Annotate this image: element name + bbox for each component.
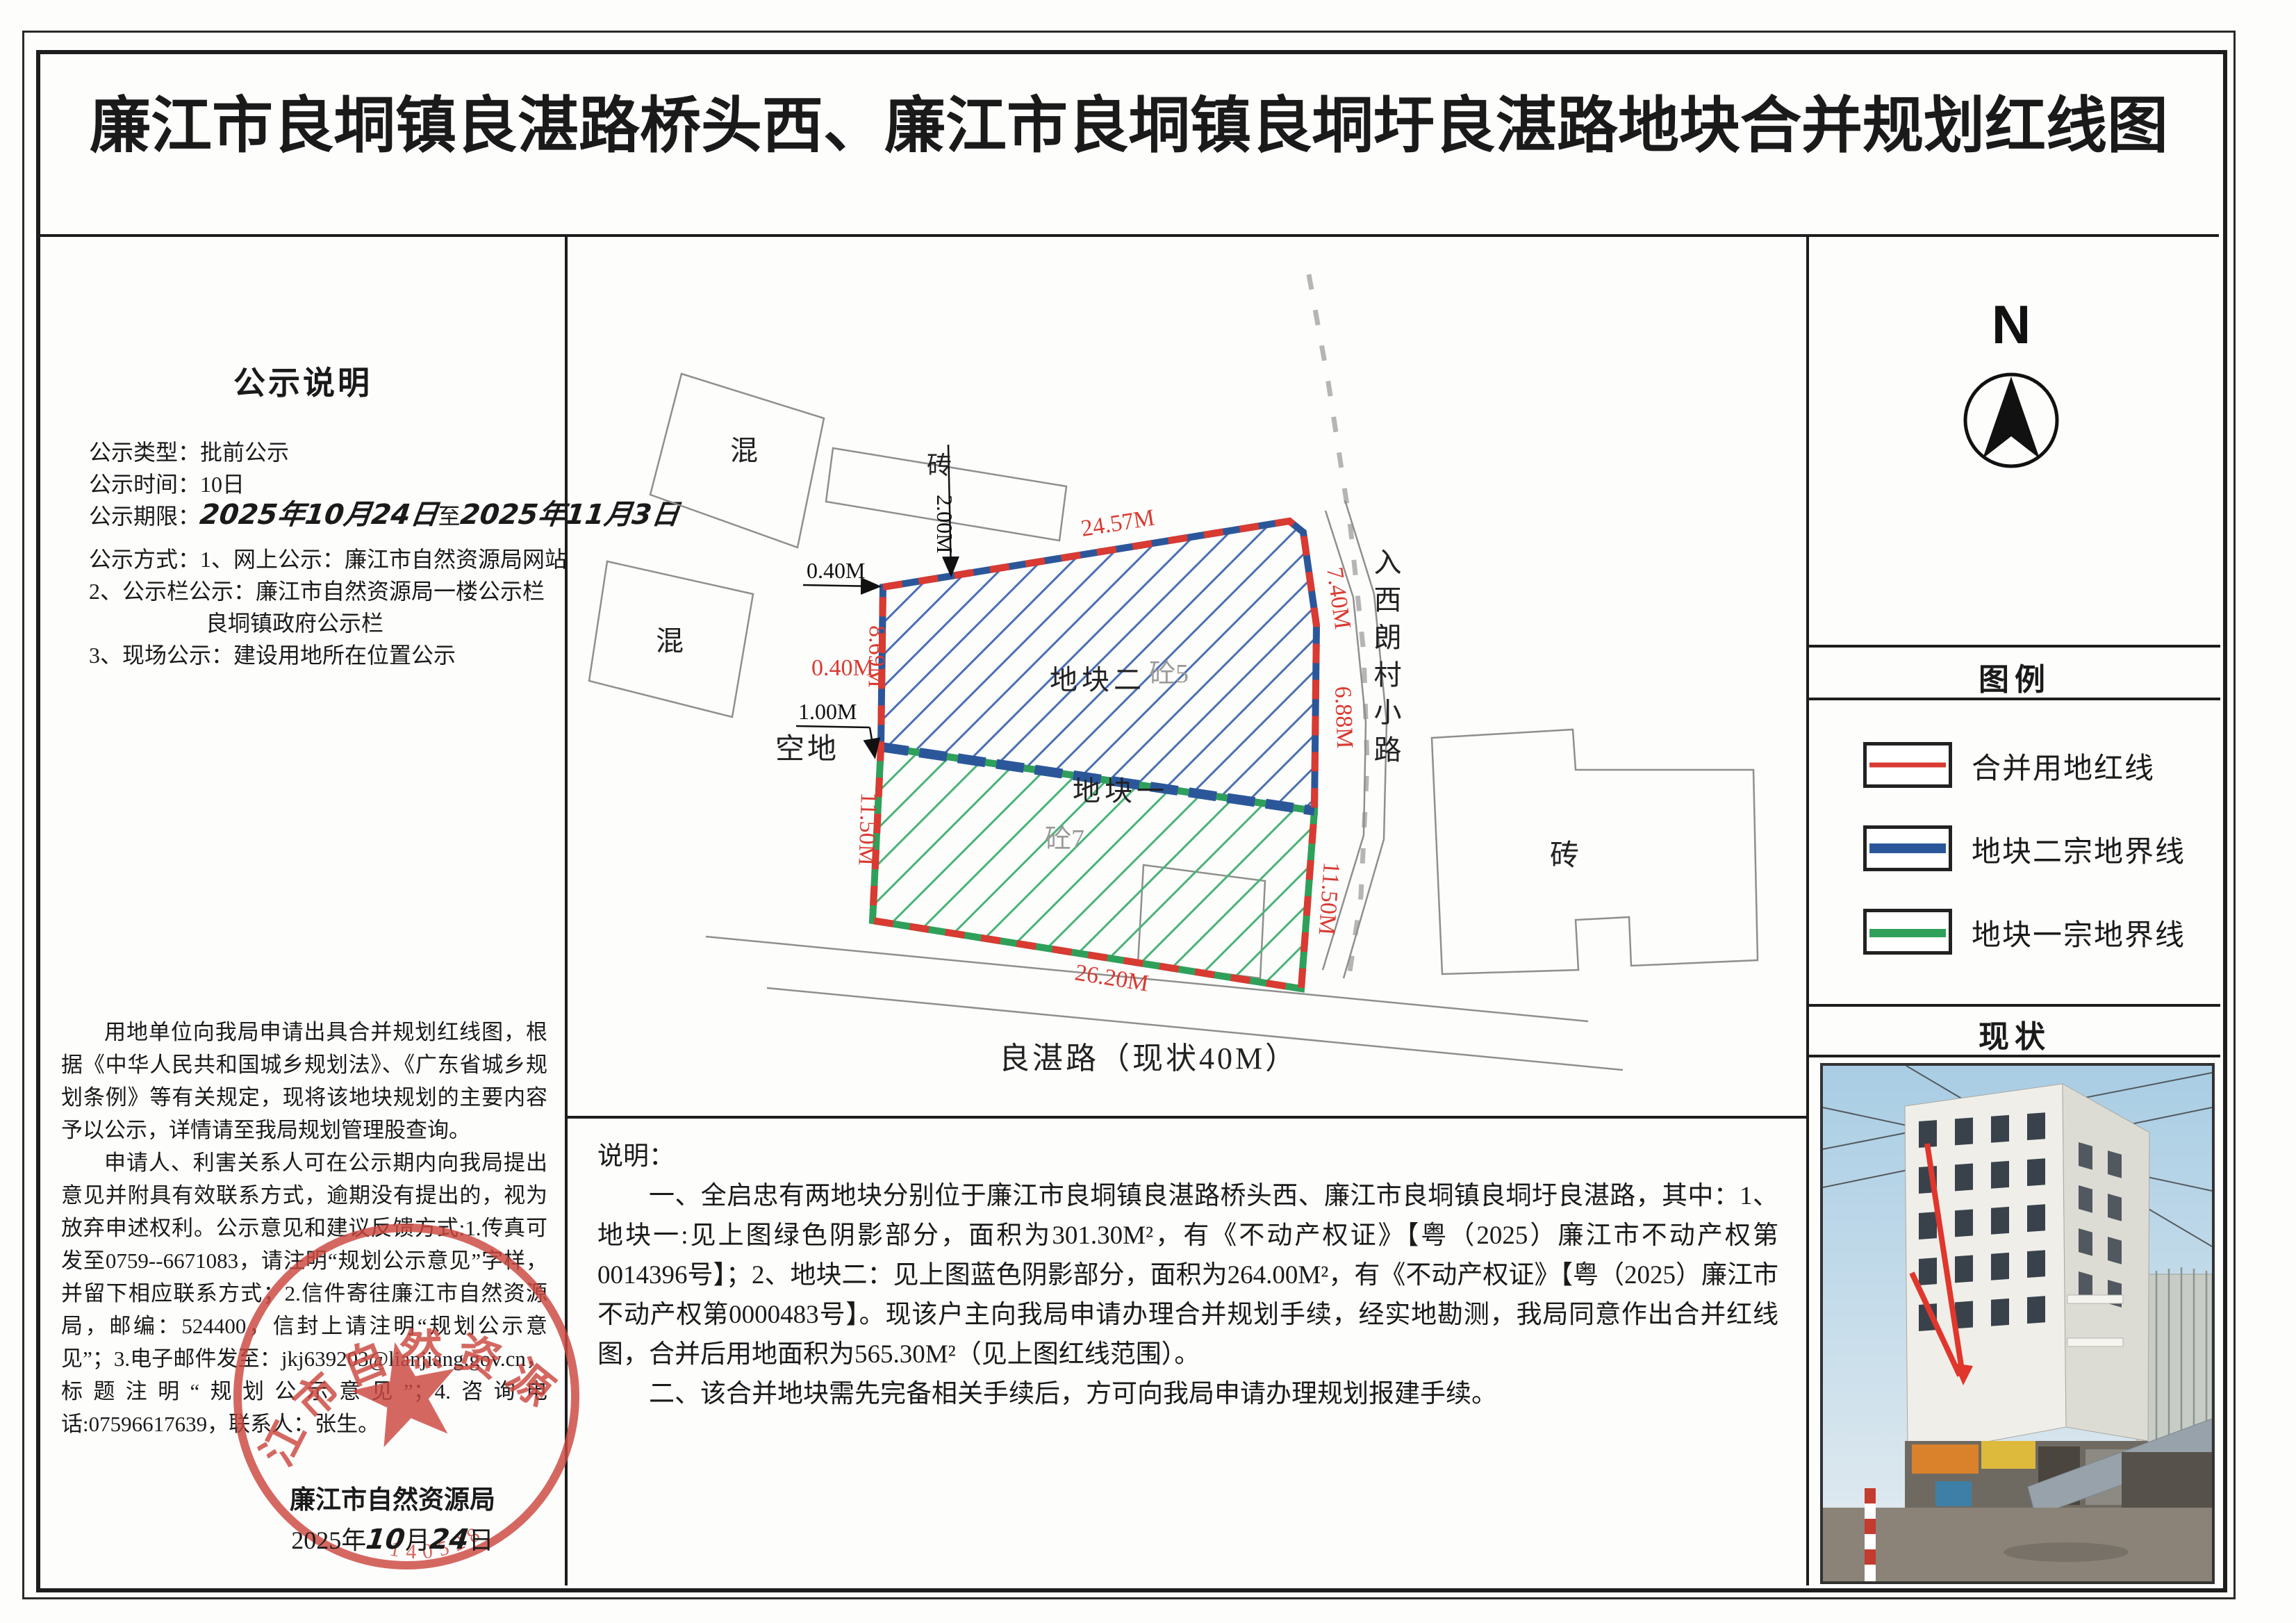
dim-left-lower: 11.50M [853, 792, 882, 866]
brick-label-right: 砖 [1550, 840, 1579, 872]
dim-right-c: 11.50M [1314, 861, 1344, 936]
issuing-agency: 廉江市自然资源局 [229, 1478, 556, 1516]
site-photo [1823, 1066, 2212, 1581]
notice-period: 公示期限：2025年10月24日至2025年11月3日 [89, 500, 547, 543]
dim-offset-red: 0.40M [811, 655, 874, 681]
status-header: 现状 [1809, 1012, 2220, 1056]
issue-date-day-handwritten: 24 [429, 1528, 470, 1551]
notice-paragraph-2: 申请人、利害关系人可在公示期内向我局提出意见并附具有效联系方式，逾期没有提出的，… [61, 1146, 547, 1440]
dim-right-b: 6.88M [1330, 686, 1357, 749]
dim-offset-bottom-leader [796, 726, 870, 727]
brick-label-top: 砖 [927, 452, 952, 479]
north-arrow: N [1938, 292, 2084, 493]
legend-label-merged-redline: 合并用地红线 [1972, 745, 2155, 787]
bottom-road-label: 良湛路（现状40M） [999, 1041, 1298, 1076]
issue-date-year: 2025年 [291, 1526, 366, 1554]
legend-swatch-merged-redline [1863, 742, 1952, 788]
notice-period-start-handwritten: 2025年10月24日 [199, 503, 440, 527]
notes-heading: 说明： [597, 1137, 1778, 1176]
concrete-label-b: 混 [656, 625, 684, 657]
photo-main-building [1905, 1084, 2149, 1456]
issue-date-day-unit: 日 [469, 1526, 494, 1554]
vacant-land-label: 空地 [775, 733, 839, 766]
legend-swatch-parcel2-boundary [1863, 825, 1952, 871]
notice-period-label: 公示期限： [89, 504, 200, 529]
notice-period-join: 至 [438, 504, 461, 529]
cadastral-map: 24.57M 7.40M 6.88M 11.50M 26.20M 11.50M … [567, 236, 1806, 1116]
parcel2-note: 砼5 [1149, 659, 1189, 689]
legend-band-top [1809, 645, 2220, 648]
photo-striped-pole [1865, 1488, 1876, 1581]
legend-label-parcel1-boundary: 地块一宗地界线 [1972, 912, 2186, 954]
photo-balcony-2 [2067, 1338, 2123, 1346]
dim-offset-top: 0.40M [807, 558, 865, 583]
parcels [873, 521, 1316, 989]
issue-date: 2025年10月24日 [229, 1520, 556, 1556]
sheet: 廉江市良垌镇良湛路桥头西、廉江市良垌镇良垌圩良湛路地块合并规划红线图 公示说明 … [0, 0, 2296, 1623]
legend-header: 图例 [1809, 654, 2220, 699]
parcel2-label: 地块二 [1050, 664, 1146, 695]
issue-date-month-unit: 月 [405, 1526, 430, 1554]
page-title: 廉江市良垌镇良湛路桥头西、廉江市良垌镇良垌圩良湛路地块合并规划红线图 [42, 76, 2216, 165]
dim-right-a: 7.40M [1321, 566, 1355, 631]
notes-panel: 说明： 一、全启忠有两地块分别位于廉江市良垌镇良湛路桥头西、廉江市良垌镇良垌圩良… [597, 1137, 1778, 1414]
status-band-bottom [1809, 1055, 2220, 1057]
legend-swatch-parcel1-boundary [1863, 909, 1952, 955]
notice-info: 公示类型：批前公示 公示时间：10日 公示期限：2025年10月24日至2025… [89, 436, 547, 671]
notice-paragraphs: 用地单位向我局申请出具合并规划红线图，根据《中华人民共和国城乡规划法》、《广东省… [61, 1016, 547, 1440]
notice-paragraph-1: 用地单位向我局申请出具合并规划红线图，根据《中华人民共和国城乡规划法》、《广东省… [61, 1016, 547, 1146]
notes-paragraph-1: 一、全启忠有两地块分别位于廉江市良垌镇良湛路桥头西、廉江市良垌镇良垌圩良湛路，其… [597, 1176, 1778, 1374]
notice-heading: 公示说明 [40, 358, 565, 404]
legend-label-parcel2-boundary: 地块二宗地界线 [1972, 828, 2186, 871]
side-road-label: 入西朗村小路 [1370, 547, 1401, 773]
dim-offset-bottom-drop [870, 727, 875, 756]
north-letter: N [1992, 294, 2031, 355]
status-band-top [1809, 1004, 2220, 1007]
photo-street [1823, 1508, 2212, 1581]
notice-type: 公示类型：批前公示 [89, 436, 547, 468]
building-brick-right [1432, 730, 1758, 974]
photo-blue-cart [1935, 1481, 1972, 1506]
right-panel-divider [1806, 234, 1809, 1585]
dim-offset-top-leader [803, 585, 878, 586]
dim-offset-bottom: 1.00M [798, 699, 857, 724]
parcel1-label: 地块一 [1073, 775, 1168, 807]
photo-balcony-1 [2067, 1295, 2123, 1303]
notice-duration: 公示时间：10日 [89, 468, 547, 500]
parcel1-note: 砼7 [1045, 825, 1084, 854]
dim-top: 24.57M [1079, 505, 1156, 542]
notice-method-web: 公示方式：1、网上公示：廉江市自然资源局网站 [89, 543, 547, 575]
notice-method-board2: 良垌镇政府公示栏 [89, 607, 547, 639]
photo-puddle [2004, 1542, 2129, 1562]
issue-date-month-handwritten: 10 [365, 1528, 406, 1551]
notice-method-board: 2、公示栏公示：廉江市自然资源局一楼公示栏 [89, 575, 547, 607]
north-arrow-icon [1983, 377, 2040, 459]
legend-band-bottom [1809, 698, 2220, 700]
site-photo-frame [1820, 1063, 2215, 1584]
notes-paragraph-2: 二、该合并地块需先完备相关手续后，方可向我局申请办理规划报建手续。 [597, 1374, 1778, 1414]
concrete-label-a: 混 [730, 435, 758, 466]
notice-method-site: 3、现场公示：建设用地所在位置公示 [89, 639, 547, 671]
map-notes-divider [565, 1116, 1809, 1119]
dim-setback: 2.00M [932, 495, 957, 553]
